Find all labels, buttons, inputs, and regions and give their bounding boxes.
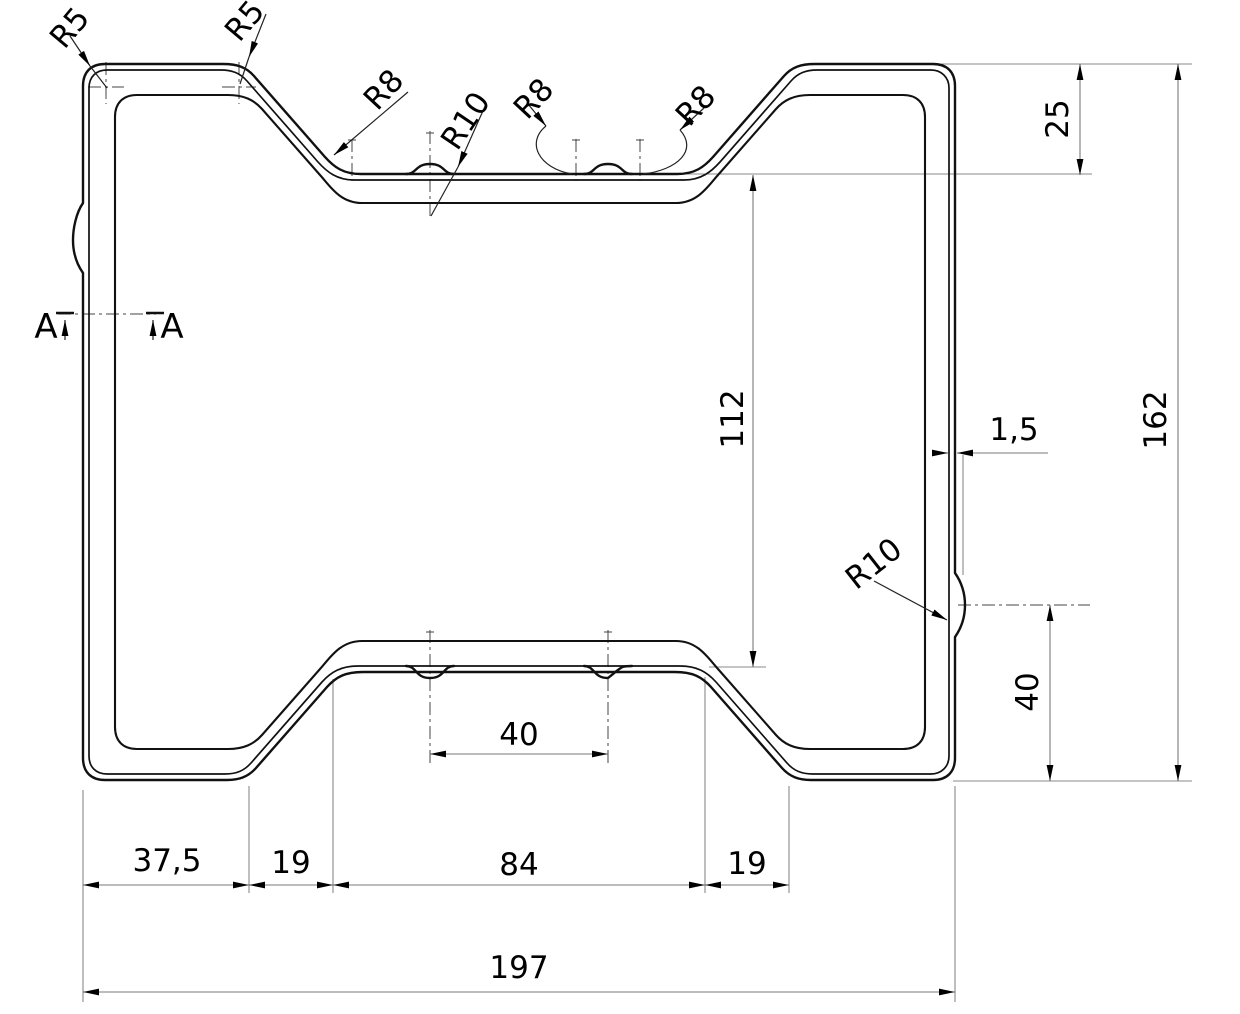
dim-label-40-side: 40: [1010, 672, 1046, 711]
dim-label-37p5: 37,5: [132, 843, 201, 879]
dim-label-19-left: 19: [271, 845, 310, 881]
radius-label-r8-right: R8: [669, 79, 723, 134]
radius-label-r5-left: R5: [43, 1, 97, 56]
dim-label-25: 25: [1040, 99, 1076, 138]
radius-leaders: [70, 14, 947, 620]
radius-label-r10-side: R10: [839, 531, 909, 597]
section-label-a-right: A: [160, 307, 183, 347]
dim-label-84: 84: [499, 847, 538, 883]
top-rib-bump-right: [584, 164, 632, 174]
dim-label-197: 197: [489, 950, 548, 986]
section-marks: [56, 313, 164, 340]
leader-r8-right-arc: [643, 130, 687, 174]
radius-label-r10-top: R10: [434, 86, 498, 157]
extension-lines: [83, 64, 1192, 1002]
radius-label-r8-left: R8: [357, 63, 411, 118]
profile-inner-wall-path: [89, 70, 949, 774]
centerlines: [58, 62, 1090, 765]
dim-label-40-bottom: 40: [499, 717, 538, 753]
inner-cavity-path: [115, 95, 925, 749]
dim-label-162: 162: [1138, 390, 1174, 449]
leader-r10-side: [874, 581, 947, 620]
dim-label-112: 112: [715, 389, 751, 448]
leader-r8-mid-arc: [536, 126, 572, 174]
dim-label-1p5: 1,5: [989, 412, 1038, 448]
radius-label-r5-right: R5: [218, 0, 272, 48]
profile: [73, 64, 965, 780]
radius-label-r8-mid: R8: [507, 72, 561, 127]
section-label-a-left: A: [34, 307, 57, 347]
labels: R5 R5 R8 R10 R8 R8 R10 25 162 112 1,5 40…: [34, 0, 1174, 986]
profile-outer-path: [73, 64, 965, 780]
dim-label-19-right: 19: [727, 846, 766, 882]
technical-drawing: R5 R5 R8 R10 R8 R8 R10 25 162 112 1,5 40…: [0, 0, 1240, 1014]
drawing-canvas: R5 R5 R8 R10 R8 R8 R10 25 162 112 1,5 40…: [0, 0, 1240, 1014]
